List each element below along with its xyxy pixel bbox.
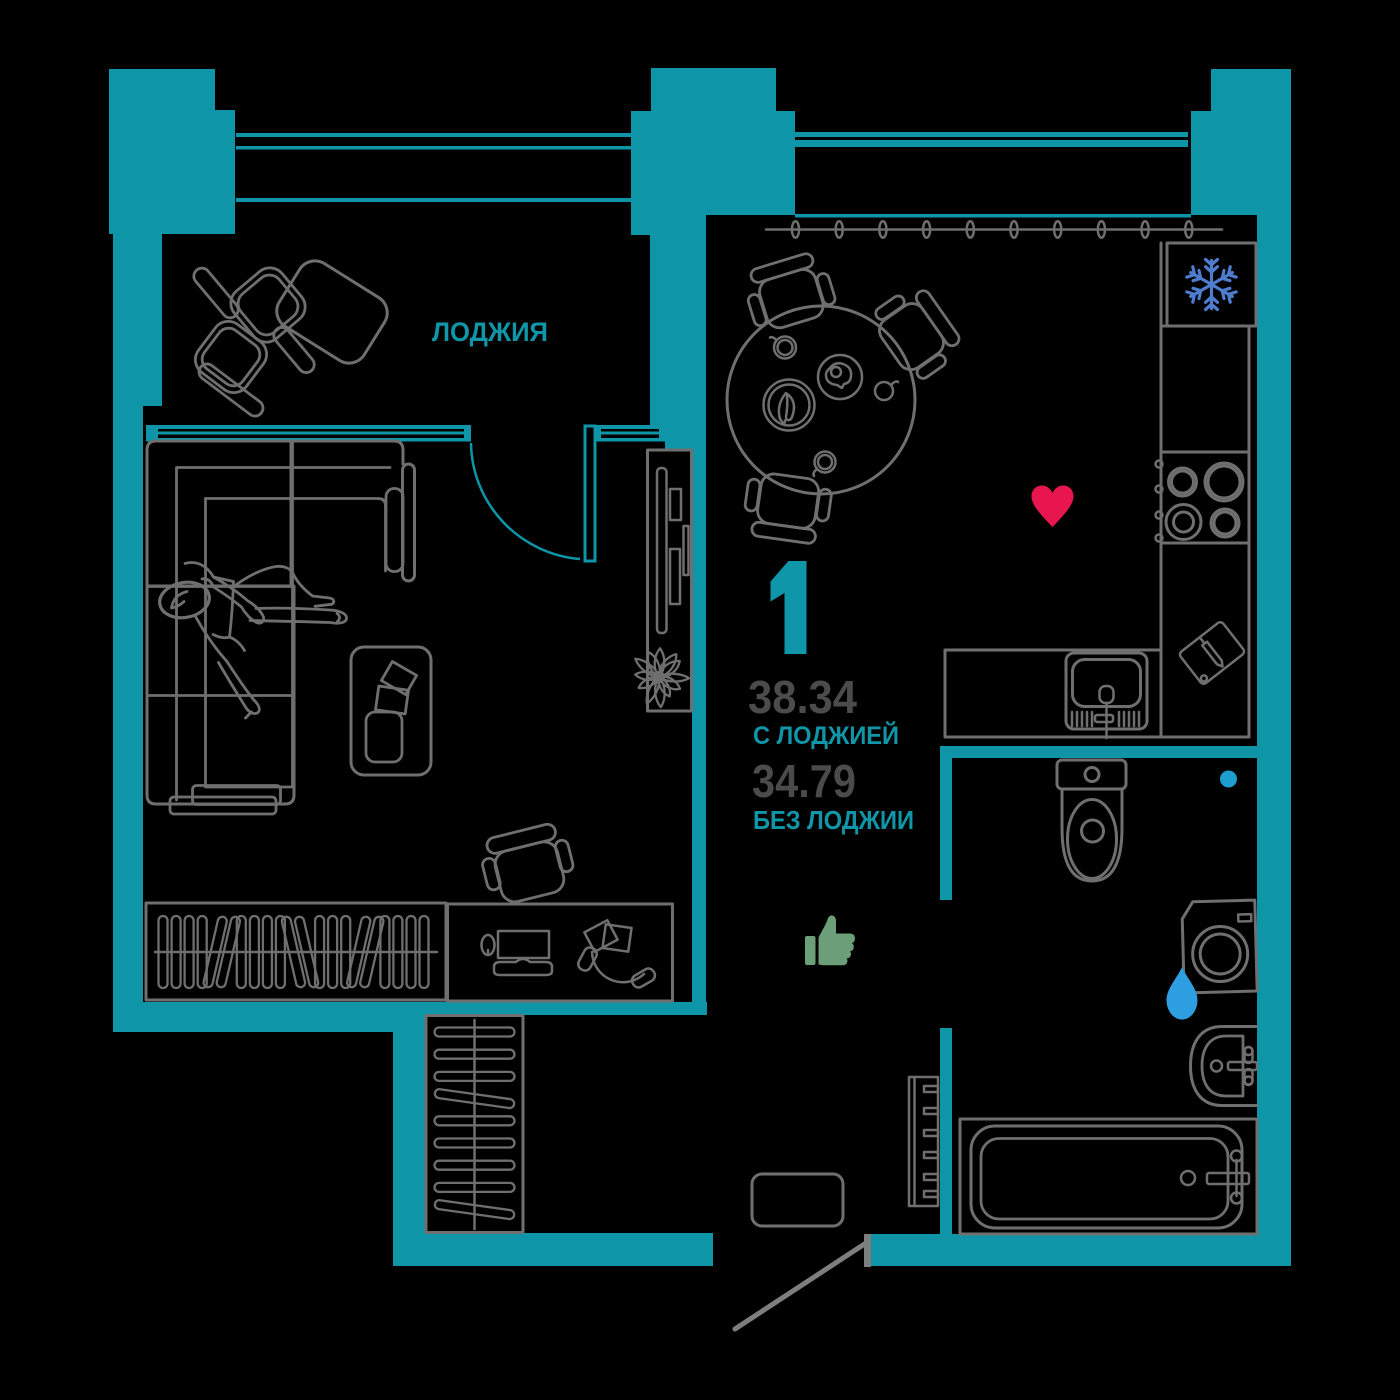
svg-text:38.34: 38.34: [748, 671, 857, 723]
svg-text:БЕЗ ЛОДЖИИ: БЕЗ ЛОДЖИИ: [753, 805, 914, 835]
svg-text:С ЛОДЖИЕЙ: С ЛОДЖИЕЙ: [753, 720, 899, 750]
svg-text:ЛОДЖИЯ: ЛОДЖИЯ: [432, 317, 548, 347]
svg-text:34.79: 34.79: [752, 755, 856, 807]
